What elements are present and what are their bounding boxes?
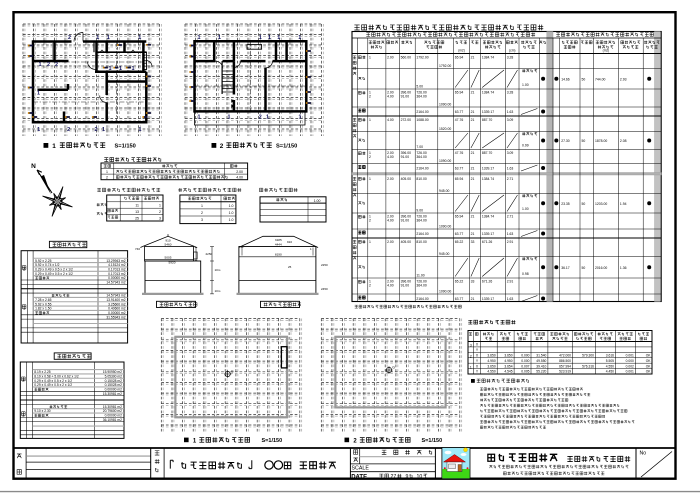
svg-text:2: 2 (201, 211, 203, 215)
svg-text:1: 1 (107, 35, 110, 41)
svg-text:1.63: 1.63 (507, 297, 514, 301)
svg-text:3.654: 3.654 (504, 364, 512, 368)
svg-text:1: 1 (268, 35, 271, 41)
svg-text:1.63: 1.63 (507, 232, 514, 236)
svg-text:576.316: 576.316 (582, 364, 594, 368)
svg-text:1520.00: 1520.00 (439, 127, 451, 131)
svg-text:0.001: 0.001 (626, 353, 634, 357)
svg-text:31.55943 m2: 31.55943 m2 (106, 315, 125, 319)
svg-text:S=1/150: S=1/150 (262, 438, 283, 444)
svg-text:1: 1 (102, 127, 105, 133)
svg-text:2250: 2250 (206, 252, 213, 256)
svg-text:2164.00: 2164.00 (416, 110, 428, 114)
svg-text:21: 21 (471, 177, 475, 181)
svg-text:945.00: 945.00 (439, 189, 449, 193)
svg-text:2250: 2250 (321, 263, 328, 267)
svg-text:1: 1 (369, 56, 371, 60)
svg-text:523.919: 523.919 (559, 370, 571, 374)
svg-text:36.10981 m2: 36.10981 m2 (103, 418, 122, 422)
svg-text:744.00: 744.00 (595, 77, 605, 81)
svg-text:1: 1 (369, 177, 371, 181)
svg-text:0.007: 0.007 (521, 364, 529, 368)
svg-text:36.17: 36.17 (561, 266, 570, 270)
svg-text:OK: OK (646, 370, 652, 374)
svg-text:OK: OK (646, 359, 652, 363)
svg-text:21: 21 (471, 110, 475, 114)
svg-text:No: No (640, 451, 647, 457)
svg-text:2: 2 (220, 143, 224, 150)
svg-text:1: 1 (37, 91, 40, 97)
svg-text:1090.00: 1090.00 (439, 290, 451, 294)
svg-text:3: 3 (201, 218, 203, 222)
svg-text:S=1/150: S=1/150 (276, 144, 297, 150)
svg-text:1.63: 1.63 (507, 167, 514, 171)
svg-text:OK: OK (646, 364, 652, 368)
svg-text:1090.00: 1090.00 (439, 159, 451, 163)
svg-text:2164.00: 2164.00 (416, 167, 428, 171)
svg-text:14.57943 m2: 14.57943 m2 (106, 281, 125, 285)
svg-text:2: 2 (68, 35, 71, 41)
svg-text:0.29 x 0.49 x 0.5 x 2 x 1/2: 0.29 x 0.49 x 0.5 x 2 x 1/2 (35, 272, 73, 276)
svg-text:0.001: 0.001 (626, 370, 634, 374)
svg-text:1: 1 (201, 204, 203, 208)
svg-text:10m: 10m (215, 268, 221, 272)
svg-text:5460: 5460 (165, 243, 172, 247)
svg-text:0.98: 0.98 (522, 272, 529, 276)
svg-text:1339.17: 1339.17 (482, 110, 494, 114)
svg-text:2: 2 (67, 127, 70, 133)
svg-text:3185: 3185 (275, 238, 282, 242)
svg-text:21: 21 (471, 91, 475, 95)
svg-text:3.650: 3.650 (487, 353, 495, 357)
svg-text:1: 1 (106, 170, 108, 174)
svg-text:1: 1 (139, 127, 142, 133)
svg-text:47.76: 47.76 (455, 151, 464, 155)
svg-text:671.26: 671.26 (482, 240, 492, 244)
svg-text:65.22: 65.22 (455, 280, 464, 284)
svg-text:0.000: 0.000 (626, 359, 634, 363)
svg-text:2: 2 (369, 219, 371, 223)
svg-text:23.35: 23.35 (561, 202, 570, 206)
svg-text:1.00: 1.00 (522, 83, 529, 87)
svg-text:50: 50 (582, 266, 586, 270)
svg-text:272.00: 272.00 (401, 118, 411, 122)
svg-text:4.00: 4.00 (236, 176, 243, 180)
svg-text:887.70: 887.70 (482, 151, 492, 155)
svg-text:3: 3 (159, 216, 161, 220)
svg-text:63.77: 63.77 (455, 167, 464, 171)
svg-text:OK: OK (646, 353, 652, 357)
svg-text:1: 1 (369, 118, 371, 122)
svg-text:91.00: 91.00 (401, 284, 410, 288)
svg-text:910: 910 (287, 240, 292, 244)
svg-text:579.300: 579.300 (582, 353, 594, 357)
svg-text:91.00: 91.00 (401, 95, 410, 99)
svg-text:657.994: 657.994 (559, 364, 571, 368)
svg-text:4.545: 4.545 (504, 370, 512, 374)
svg-text:G: G (392, 366, 395, 370)
svg-text:3: 3 (470, 344, 472, 348)
svg-text:1: 1 (277, 35, 280, 41)
svg-text:91.00: 91.00 (401, 219, 410, 223)
svg-text:G: G (231, 370, 234, 374)
svg-text:15.30981 m2: 15.30981 m2 (103, 392, 122, 396)
svg-text:13: 13 (135, 210, 139, 214)
svg-text:364.00: 364.00 (416, 155, 426, 159)
svg-text:63.77: 63.77 (455, 232, 464, 236)
svg-text:33: 33 (471, 280, 475, 284)
svg-text:3.616: 3.616 (606, 353, 614, 357)
svg-text:3.650: 3.650 (487, 364, 495, 368)
svg-text:364.00: 364.00 (416, 284, 426, 288)
svg-text:1: 1 (228, 115, 231, 121)
svg-text:1.94: 1.94 (620, 202, 627, 206)
svg-text:1: 1 (159, 204, 161, 208)
svg-text:1339.17: 1339.17 (482, 297, 494, 301)
svg-text:21: 21 (471, 56, 475, 60)
svg-text:1: 1 (52, 143, 56, 150)
svg-text:50: 50 (582, 139, 586, 143)
svg-text:1090.00: 1090.00 (439, 103, 451, 107)
svg-text:740: 740 (135, 247, 140, 251)
svg-text:5.00: 5.00 (416, 85, 423, 89)
svg-text:1: 1 (119, 66, 122, 72)
svg-text:945.00: 945.00 (439, 252, 449, 256)
svg-text:65.94: 65.94 (455, 56, 464, 60)
svg-text:1339.17: 1339.17 (482, 167, 494, 171)
svg-text:65.22: 65.22 (455, 240, 464, 244)
svg-text:1: 1 (259, 35, 262, 41)
svg-text:3.28: 3.28 (507, 56, 514, 60)
svg-text:49.550: 49.550 (536, 359, 546, 363)
svg-text:7.00: 7.00 (416, 145, 423, 149)
svg-text:S=1/150: S=1/150 (115, 144, 136, 150)
svg-text:2: 2 (55, 62, 58, 68)
svg-text:810.00: 810.00 (416, 240, 426, 244)
svg-text:5005: 5005 (165, 256, 172, 260)
svg-text:65.94: 65.94 (455, 215, 464, 219)
svg-text:887.70: 887.70 (482, 118, 492, 122)
svg-text:3.28: 3.28 (507, 91, 514, 95)
svg-text:(m2): (m2) (603, 49, 610, 53)
svg-text:SCALE: SCALE (352, 465, 370, 471)
svg-text:1203.00: 1203.00 (595, 202, 607, 206)
svg-text:1: 1 (266, 115, 269, 121)
svg-text:364.00: 364.00 (416, 95, 426, 99)
svg-text:1878.00: 1878.00 (595, 139, 607, 143)
svg-text:2164.00: 2164.00 (416, 232, 428, 236)
svg-text:65.94: 65.94 (455, 91, 464, 95)
svg-text:21: 21 (471, 215, 475, 219)
svg-text:0.000: 0.000 (521, 359, 529, 363)
svg-text:1: 1 (138, 35, 141, 41)
svg-text:21: 21 (471, 118, 475, 122)
svg-text:3.09: 3.09 (507, 151, 514, 155)
svg-text:1090.00: 1090.00 (439, 225, 451, 229)
svg-text:1: 1 (298, 35, 301, 41)
svg-text:1: 1 (369, 240, 371, 244)
svg-text:2.00: 2.00 (236, 170, 243, 174)
svg-text:9.00: 9.00 (416, 209, 423, 213)
svg-text:10: 10 (417, 474, 423, 480)
svg-text:1: 1 (218, 35, 221, 41)
svg-text:2: 2 (106, 176, 108, 180)
svg-text:4.950: 4.950 (487, 359, 495, 363)
svg-text:39.410: 39.410 (536, 364, 546, 368)
svg-text:1: 1 (39, 62, 42, 68)
svg-text:1384.74: 1384.74 (482, 56, 494, 60)
svg-text:2: 2 (159, 210, 161, 214)
svg-text:1384.74: 1384.74 (482, 91, 494, 95)
svg-text:5.505: 5.505 (606, 359, 614, 363)
svg-text:1: 1 (109, 66, 112, 72)
svg-text:1.00: 1.00 (522, 207, 529, 211)
svg-text:3.650: 3.650 (504, 353, 512, 357)
svg-text:2.00: 2.00 (387, 177, 394, 181)
svg-text:4.00: 4.00 (387, 118, 394, 122)
svg-text:1.0: 1.0 (229, 218, 234, 222)
svg-text:4.00: 4.00 (387, 155, 394, 159)
svg-text:(cm): (cm) (509, 49, 515, 53)
svg-text:2: 2 (369, 95, 371, 99)
svg-text:4.550: 4.550 (487, 370, 495, 374)
svg-text:55.220: 55.220 (536, 370, 546, 374)
svg-text:0.000: 0.000 (521, 353, 529, 357)
svg-text:91.00: 91.00 (401, 155, 410, 159)
svg-text:1088.00: 1088.00 (416, 118, 428, 122)
svg-text:4.550: 4.550 (606, 364, 614, 368)
svg-text:2.71: 2.71 (507, 177, 514, 181)
svg-text:27: 27 (391, 474, 397, 480)
svg-text:364.00: 364.00 (416, 219, 426, 223)
svg-text:1.63: 1.63 (507, 110, 514, 114)
svg-text:DATE: DATE (351, 474, 367, 480)
svg-text:1384.74: 1384.74 (482, 177, 494, 181)
svg-text:2164.00: 2164.00 (416, 297, 428, 301)
svg-text:2.08: 2.08 (620, 139, 627, 143)
svg-text:31.540: 31.540 (536, 353, 546, 357)
svg-text:405.00: 405.00 (401, 177, 411, 181)
svg-text:2016.00: 2016.00 (595, 266, 607, 270)
svg-text:27.30: 27.30 (561, 139, 570, 143)
svg-text:2.91: 2.91 (507, 240, 514, 244)
svg-text:4.00: 4.00 (387, 219, 394, 223)
svg-text:2: 2 (95, 127, 98, 133)
svg-text:1: 1 (198, 35, 201, 41)
svg-text:4444: 4444 (275, 243, 282, 247)
svg-text:50: 50 (582, 77, 586, 81)
svg-text:3.09: 3.09 (507, 118, 514, 122)
svg-text:1: 1 (96, 35, 99, 41)
svg-text:21: 21 (471, 297, 475, 301)
svg-text:4.00: 4.00 (387, 95, 394, 99)
svg-text:886.500: 886.500 (559, 359, 571, 363)
svg-text:2.91: 2.91 (507, 280, 514, 284)
svg-text:21: 21 (471, 167, 475, 171)
svg-text:2.71: 2.71 (507, 215, 514, 219)
svg-text:472.000: 472.000 (559, 353, 571, 357)
svg-text:1384.74: 1384.74 (482, 215, 494, 219)
svg-text:1.36: 1.36 (620, 266, 627, 270)
svg-text:47.76: 47.76 (455, 118, 464, 122)
svg-text:21: 21 (471, 232, 475, 236)
svg-text:1339.17: 1339.17 (482, 232, 494, 236)
svg-text:560.00: 560.00 (401, 56, 411, 60)
svg-text:2: 2 (470, 354, 472, 358)
svg-text:2.00: 2.00 (387, 56, 394, 60)
svg-text:2: 2 (47, 62, 50, 68)
svg-text:2.93: 2.93 (620, 77, 627, 81)
svg-text:50: 50 (582, 202, 586, 206)
svg-text:(m2): (m2) (458, 49, 465, 53)
svg-text:1792.00: 1792.00 (416, 56, 428, 60)
svg-text:4.00: 4.00 (387, 284, 394, 288)
svg-text:2.00: 2.00 (387, 240, 394, 244)
svg-text:1.82 x 1.50: 1.82 x 1.50 (35, 307, 51, 311)
svg-text:5920: 5920 (169, 261, 176, 265)
svg-text:11.00: 11.00 (416, 274, 424, 278)
svg-text:N: N (31, 163, 36, 170)
svg-text:810.00: 810.00 (416, 177, 426, 181)
svg-text:0.29 x 0.49 x 0.5 x 2 x 1/2: 0.29 x 0.49 x 0.5 x 2 x 1/2 (34, 383, 72, 387)
svg-text:65.94: 65.94 (455, 177, 464, 181)
svg-text:9: 9 (406, 474, 409, 480)
svg-text:S=1/150: S=1/150 (422, 438, 443, 444)
svg-text:33: 33 (471, 240, 475, 244)
svg-text:1: 1 (132, 66, 135, 72)
svg-text:1: 1 (470, 365, 472, 369)
svg-text:8190: 8190 (275, 253, 282, 257)
svg-text:1: 1 (198, 115, 201, 121)
svg-text:63.77: 63.77 (455, 297, 464, 301)
svg-text:2: 2 (369, 284, 371, 288)
svg-text:9.10 x 2.30: 9.10 x 2.30 (34, 409, 50, 413)
svg-text:0.002: 0.002 (626, 364, 634, 368)
svg-text:1.00: 1.00 (314, 199, 321, 203)
svg-text:1.0: 1.0 (229, 204, 234, 208)
svg-text:1.0: 1.0 (229, 211, 234, 215)
svg-text:2450: 2450 (321, 287, 328, 291)
svg-text:1: 1 (299, 115, 302, 121)
svg-text:0.005: 0.005 (521, 370, 529, 374)
svg-text:2: 2 (259, 115, 262, 121)
svg-text:2: 2 (369, 155, 371, 159)
svg-text:1792.00: 1792.00 (439, 64, 451, 68)
svg-text:25: 25 (135, 216, 139, 220)
svg-text:11: 11 (135, 204, 139, 208)
svg-text:63.77: 63.77 (455, 110, 464, 114)
svg-text:0.99: 0.99 (522, 144, 529, 148)
svg-text:1: 1 (37, 127, 40, 133)
svg-text:21: 21 (471, 151, 475, 155)
svg-text:405.00: 405.00 (401, 240, 411, 244)
svg-text:14.66: 14.66 (561, 77, 570, 81)
svg-text:4.450: 4.450 (606, 370, 614, 374)
svg-text:671.26: 671.26 (482, 280, 492, 284)
svg-text:4.950: 4.950 (504, 359, 512, 363)
svg-text:10m: 10m (215, 289, 221, 293)
svg-text:25: 25 (288, 265, 292, 269)
